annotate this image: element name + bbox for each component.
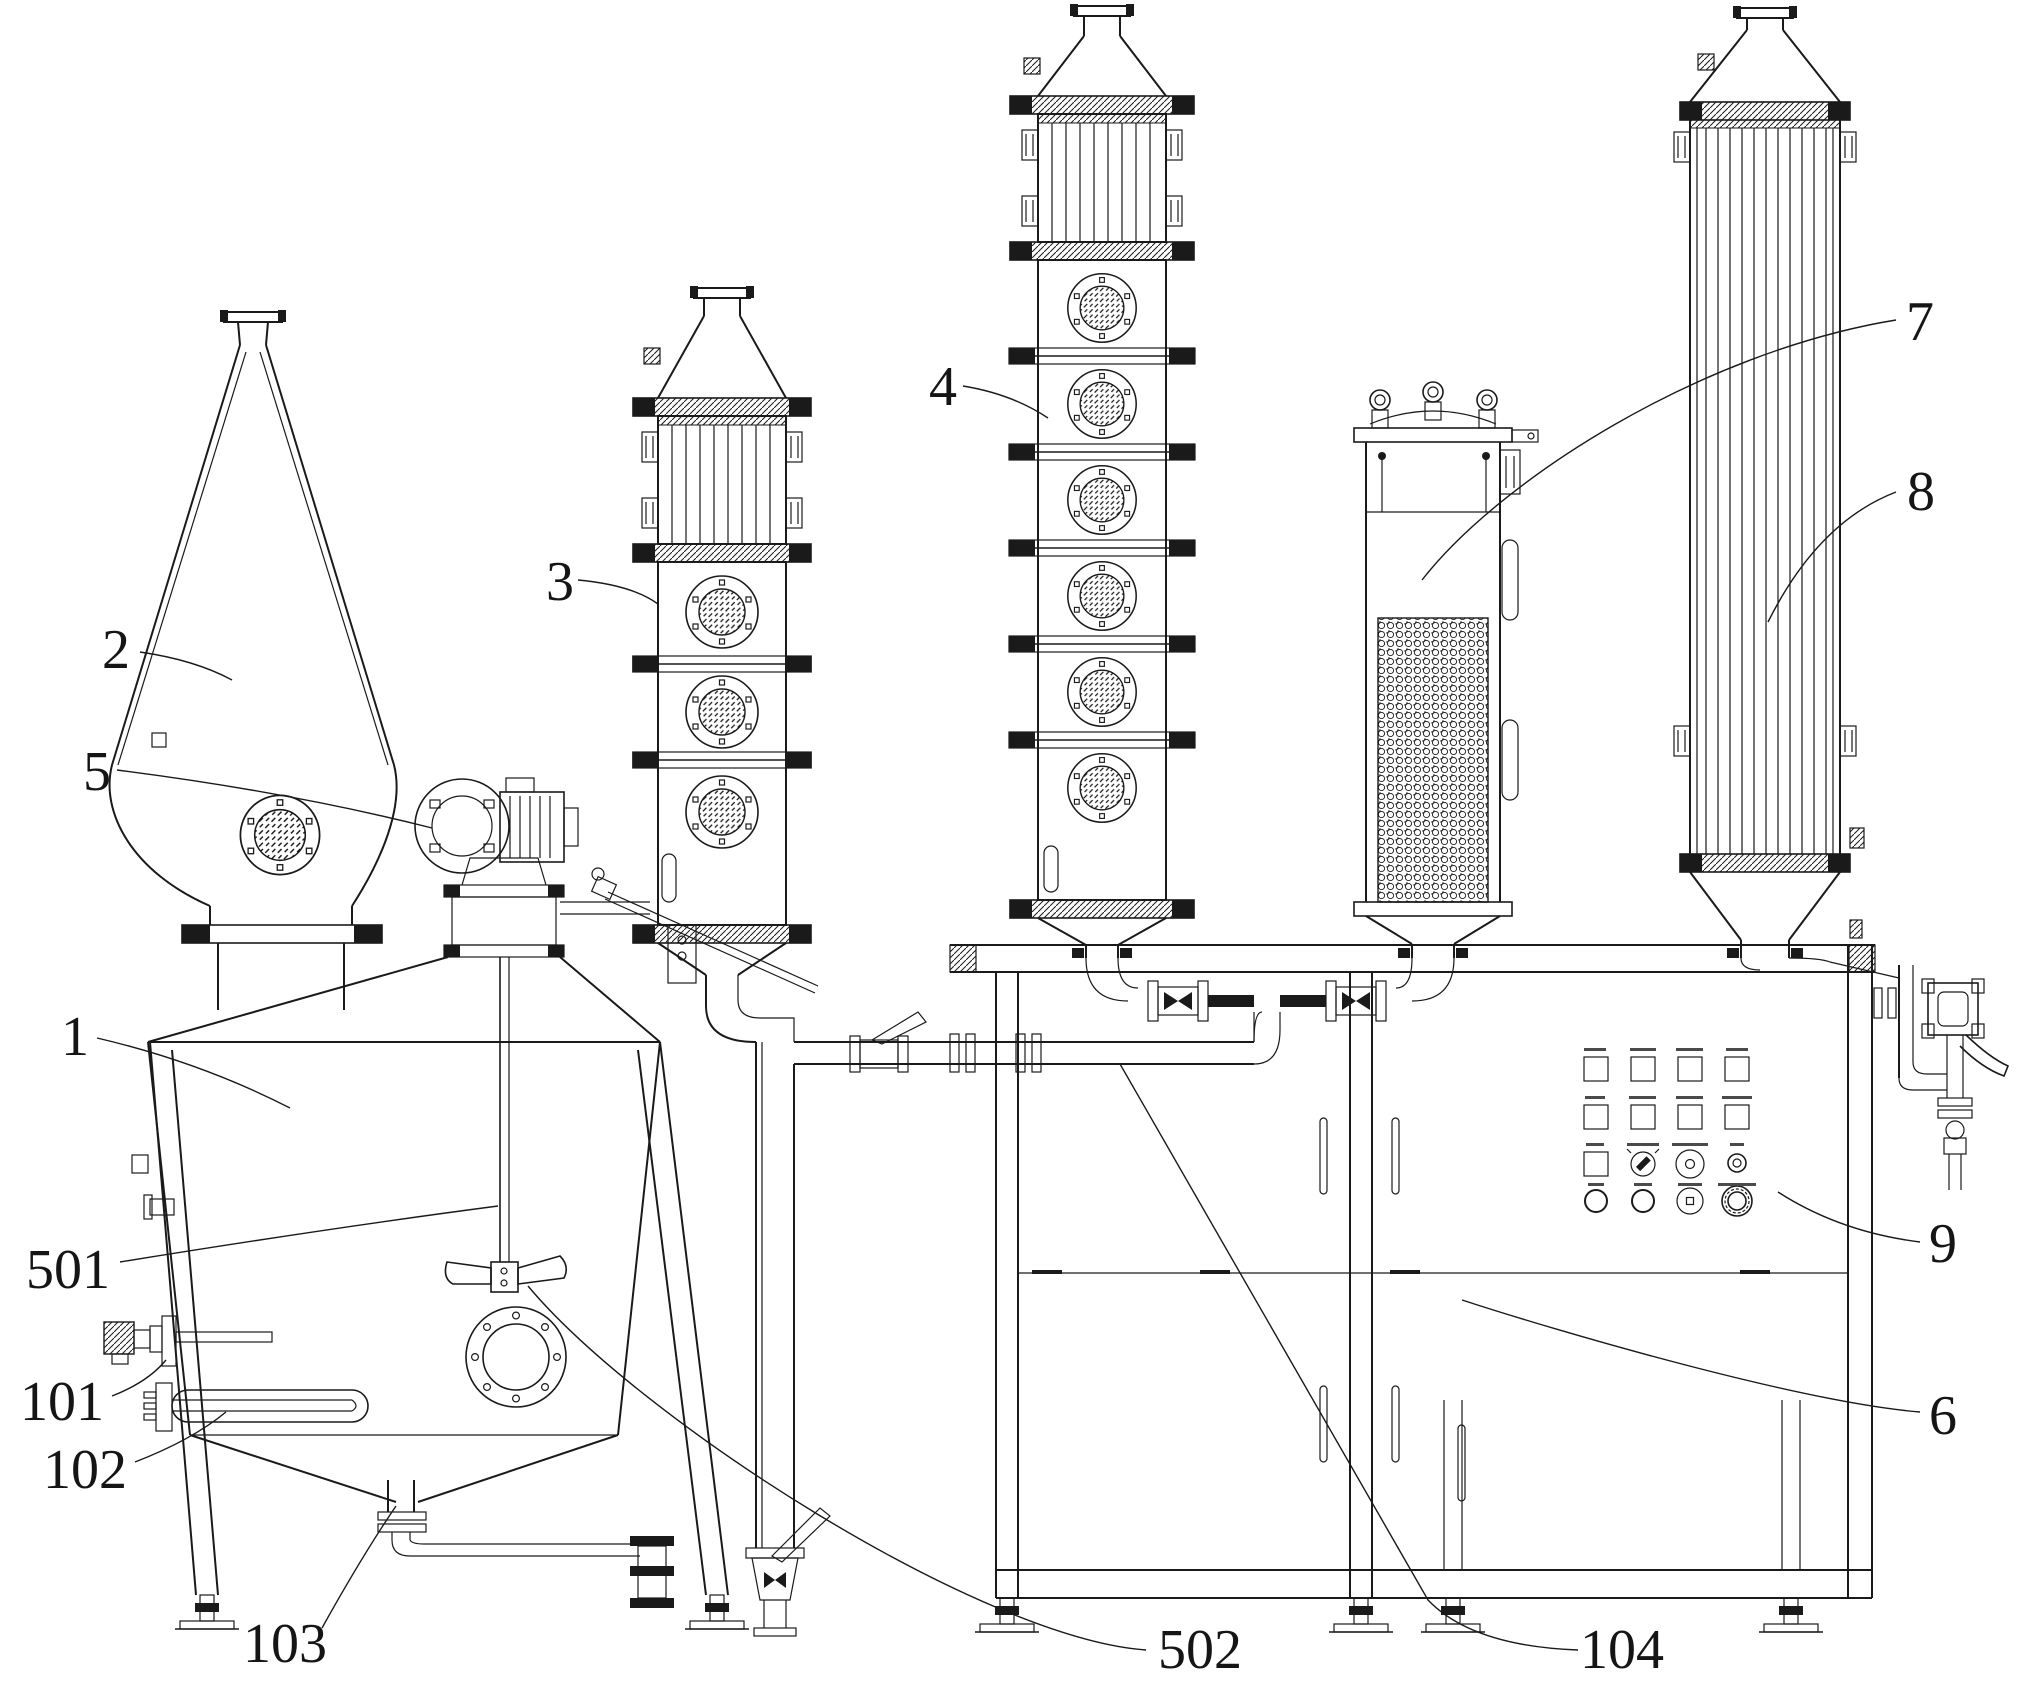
callout-labels: 1 2 3 4 5 6 7 8 9 101 102 103 104 501 50… <box>20 291 1957 1681</box>
cabinet-leg-inner-2 <box>1782 1400 1800 1570</box>
door-handle-slot <box>1320 1386 1327 1462</box>
part-label-103: 103 <box>243 1613 327 1675</box>
column-3-finned-section <box>642 416 802 544</box>
part-label-502: 502 <box>1158 1619 1242 1681</box>
column-4-sightglass-1 <box>1068 274 1136 342</box>
leader-501 <box>120 1206 498 1262</box>
under-table-valve-right <box>1280 958 1454 1021</box>
patent-diagram-page: 1 2 3 4 5 6 7 8 9 101 102 103 104 501 50… <box>0 0 2020 1685</box>
panel-square-button <box>1584 1152 1608 1176</box>
panel-emergency-stop <box>1722 1186 1752 1216</box>
tank-left-foot <box>175 1595 239 1629</box>
hopper-sightglass <box>240 795 319 874</box>
column-3-sightglass-2 <box>686 676 758 748</box>
mixing-tank <box>104 778 818 1629</box>
cabinet-wall-right <box>1848 945 1872 1598</box>
leader-4 <box>963 386 1048 418</box>
column-4-sightglass-4 <box>1068 562 1136 630</box>
panel-buttons-row-1 <box>1584 1048 1749 1081</box>
filter-vessel <box>1354 382 1538 958</box>
door-handle-slot <box>1392 1386 1399 1462</box>
cabinet-post-left <box>996 972 1018 1598</box>
leader-8 <box>1768 492 1896 622</box>
column-4-sightglass-3 <box>1068 466 1136 534</box>
column-3-sightglass-3 <box>686 776 758 848</box>
part-label-104: 104 <box>1580 1619 1664 1681</box>
column-3-sightglass-1 <box>686 576 758 648</box>
leader-502 <box>528 1286 1146 1650</box>
leader-3 <box>578 580 658 604</box>
panel-square-button <box>1678 1105 1702 1129</box>
cabinet-post-middle <box>1350 972 1372 1598</box>
panel-square-button <box>1584 1057 1608 1081</box>
panel-square-button <box>1725 1057 1749 1081</box>
panel-round-button <box>1632 1190 1654 1212</box>
panel-controls-row-4 <box>1585 1183 1756 1216</box>
panel-square-button <box>1584 1105 1608 1129</box>
tank-right-foot <box>685 1595 749 1629</box>
floor-drain-valve <box>746 1508 830 1636</box>
part-label-6: 6 <box>1929 1385 1957 1447</box>
leader-6 <box>1462 1300 1920 1412</box>
part-label-3: 3 <box>546 551 574 613</box>
callout-leaders <box>97 320 1920 1650</box>
agitator-impeller <box>445 1256 566 1292</box>
part-label-7: 7 <box>1906 291 1934 353</box>
door-handle-slot <box>1392 1118 1399 1194</box>
tank-manhole <box>466 1307 566 1407</box>
condensate-outlet-piping <box>1741 958 2008 1190</box>
panel-dial-indicator <box>1676 1150 1704 1178</box>
tank-side-nozzle <box>144 1195 174 1219</box>
condenser-tubes <box>1706 128 1826 854</box>
column-4-sightglass-2 <box>1068 370 1136 438</box>
agitator-motor <box>415 778 578 873</box>
panel-rotary-switch <box>1627 1149 1659 1176</box>
panel-square-button <box>1678 1057 1702 1081</box>
column-4-sightglass-6 <box>1068 754 1136 822</box>
panel-square-button <box>1631 1105 1655 1129</box>
part-label-8: 8 <box>1907 461 1935 523</box>
column-3-downpipe <box>756 1042 794 1548</box>
leader-101 <box>112 1360 166 1396</box>
part-label-5: 5 <box>83 741 111 803</box>
part-label-501: 501 <box>26 1239 110 1301</box>
door-handle-slot <box>1320 1118 1327 1194</box>
tank-left-leg <box>150 1042 218 1595</box>
column-3 <box>633 286 812 975</box>
tank-drain-pipe <box>378 1480 674 1608</box>
condenser-column <box>1674 6 1856 958</box>
part-label-1: 1 <box>61 1006 89 1068</box>
panel-controls-row-3 <box>1584 1143 1746 1178</box>
hopper-vessel <box>110 310 397 1010</box>
part-label-102: 102 <box>43 1439 127 1501</box>
column-4-sightglass-5 <box>1068 658 1136 726</box>
panel-round-button <box>1585 1190 1607 1212</box>
panel-square-button <box>1631 1057 1655 1081</box>
leader-1 <box>97 1038 290 1108</box>
bottom-round-valve <box>1944 1121 1966 1190</box>
leader-7 <box>1422 320 1896 580</box>
agitator-shaft <box>500 957 509 1262</box>
under-table-valve-left <box>1086 958 1254 1021</box>
thermowell-sensor <box>104 1316 272 1366</box>
equipment-diagram: 1 2 3 4 5 6 7 8 9 101 102 103 104 501 50… <box>0 0 2020 1685</box>
control-panel <box>1584 1048 1756 1216</box>
panel-buttons-row-2 <box>1584 1096 1752 1129</box>
panel-dial-indicator-2 <box>1677 1188 1703 1214</box>
panel-square-button <box>1725 1105 1749 1129</box>
column-4-finned-section <box>1022 114 1182 242</box>
faucet-spout <box>1960 1035 2008 1076</box>
part-label-9: 9 <box>1929 1213 1957 1275</box>
heating-element <box>144 1383 368 1431</box>
process-piping <box>706 958 2008 1636</box>
part-label-101: 101 <box>20 1371 104 1433</box>
part-label-4: 4 <box>929 356 957 418</box>
column-4 <box>1009 4 1195 958</box>
part-label-2: 2 <box>102 619 130 681</box>
faucet-valve <box>1922 979 2008 1076</box>
filter-packing <box>1378 618 1488 902</box>
valve-lever <box>872 1012 926 1044</box>
panel-knob <box>1728 1154 1746 1172</box>
leader-2 <box>140 652 232 680</box>
